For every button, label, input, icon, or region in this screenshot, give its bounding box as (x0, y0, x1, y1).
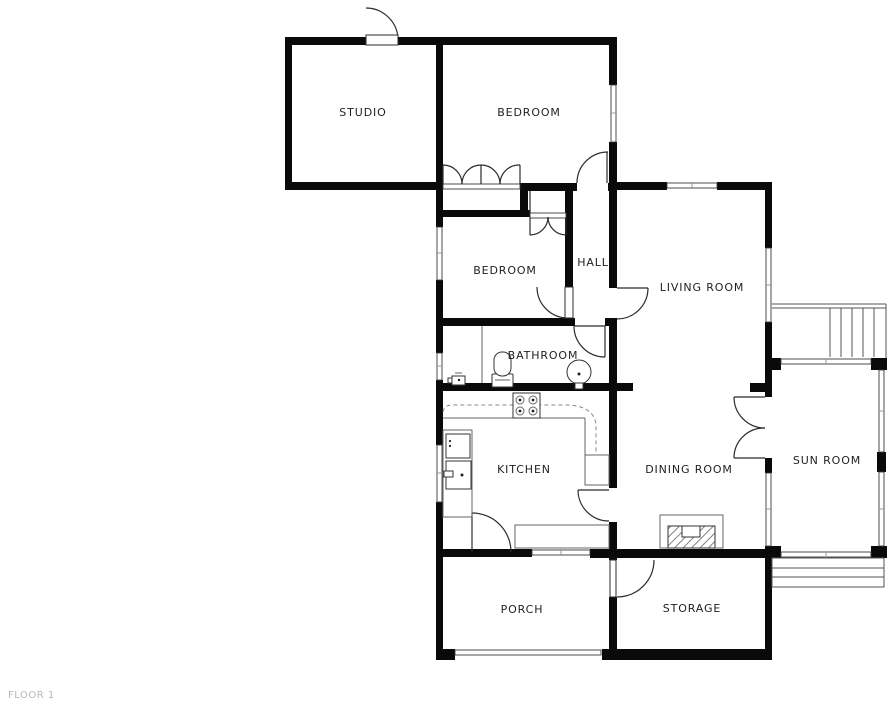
window (532, 549, 590, 556)
window (436, 445, 443, 502)
kitchen-sink (444, 461, 471, 489)
kitchen-porch-door (472, 513, 511, 552)
bedroom-closet-bifold-doors (443, 165, 520, 184)
window (878, 472, 885, 546)
small-wash-basin (448, 373, 465, 385)
room-label-porch: PORCH (501, 603, 544, 616)
sun-room-french-doors (734, 397, 765, 458)
storage-door (610, 560, 654, 597)
closet-track (443, 184, 520, 189)
bedroom-door (577, 152, 608, 183)
room-label-studio: STUDIO (339, 106, 386, 119)
window (436, 353, 443, 380)
room-label-bathroom: BATHROOM (508, 349, 579, 362)
floor-title: FLOOR 1 (8, 690, 55, 701)
counter-section (585, 455, 609, 485)
middle-bedroom-door (537, 287, 573, 318)
window (781, 551, 871, 558)
staircase (772, 304, 886, 358)
kitchen-appliance (446, 434, 470, 458)
window (781, 358, 871, 365)
room-label-bedroom-middle: BEDROOM (473, 264, 537, 277)
floor-plan-canvas: STUDIO BEDROOM BEDROOM HALL LIVING ROOM … (0, 0, 894, 711)
doors (366, 8, 765, 597)
front-door (366, 8, 398, 45)
floor-plan-svg: STUDIO BEDROOM BEDROOM HALL LIVING ROOM … (0, 0, 894, 711)
counter-section (515, 525, 609, 548)
porch-open-edge (455, 650, 601, 655)
room-label-sun-room: SUN ROOM (793, 454, 861, 467)
room-label-bedroom-top: BEDROOM (497, 106, 561, 119)
bathroom-door (574, 326, 605, 357)
room-label-dining-room: DINING ROOM (645, 463, 733, 476)
kitchen-dining-door (578, 490, 609, 521)
window (610, 85, 617, 142)
stove-4-burner (513, 393, 540, 418)
window (765, 248, 772, 322)
window (667, 182, 717, 189)
room-label-kitchen: KITCHEN (497, 463, 551, 476)
window (878, 370, 885, 452)
room-label-living-room: LIVING ROOM (660, 281, 745, 294)
room-label-storage: STORAGE (663, 602, 722, 615)
room-label-hall: HALL (577, 256, 609, 269)
fireplace (660, 515, 723, 548)
window (765, 473, 772, 546)
exterior-steps (772, 558, 884, 587)
window (436, 227, 443, 280)
living-room-door (617, 288, 648, 319)
walls (285, 37, 887, 660)
